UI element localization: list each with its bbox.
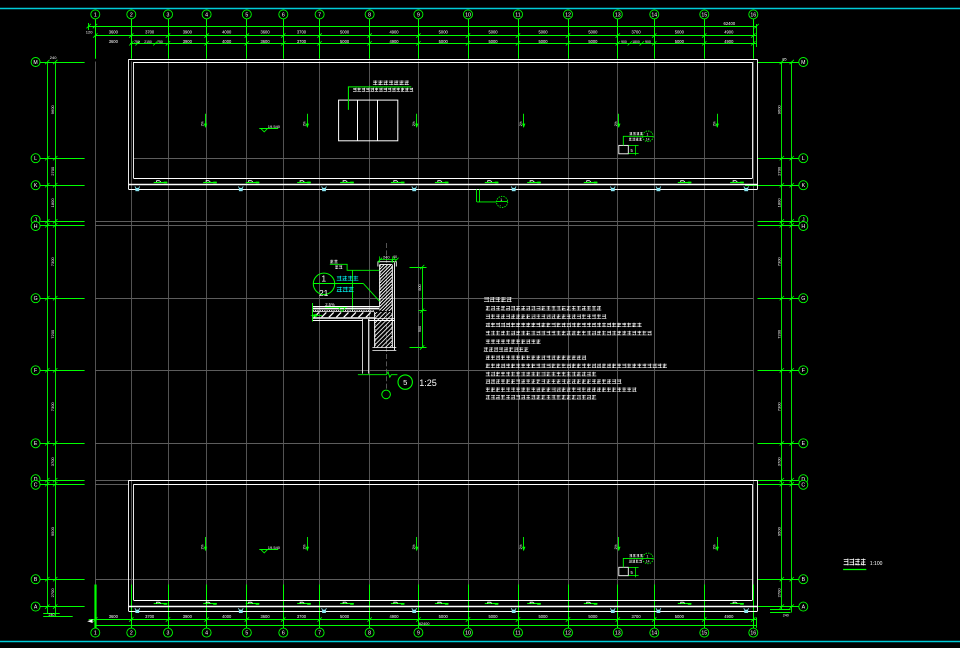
svg-text:8: 8 xyxy=(368,631,371,637)
svg-text:1: 1 xyxy=(321,274,326,284)
svg-text:E: E xyxy=(34,441,38,447)
svg-text:240: 240 xyxy=(50,55,57,60)
svg-text:1:100: 1:100 xyxy=(870,561,883,567)
svg-text:3600: 3600 xyxy=(109,39,119,44)
svg-text:K: K xyxy=(34,183,38,189)
svg-text:900: 900 xyxy=(621,40,627,44)
svg-text:10: 10 xyxy=(465,12,471,18)
svg-text:4900: 4900 xyxy=(389,614,399,619)
svg-text:11: 11 xyxy=(515,12,520,18)
svg-text:3: 3 xyxy=(167,631,170,637)
svg-text:2%: 2% xyxy=(412,544,416,549)
svg-text:14: 14 xyxy=(646,138,650,142)
svg-text:F: F xyxy=(802,368,805,374)
svg-text:1: 1 xyxy=(647,133,649,137)
svg-text:2%: 2% xyxy=(712,544,716,549)
svg-text:5: 5 xyxy=(403,378,407,387)
svg-text:9600: 9600 xyxy=(777,105,782,115)
svg-text:21: 21 xyxy=(319,288,329,298)
svg-text:9: 9 xyxy=(417,631,420,637)
svg-text:E: E xyxy=(802,441,806,447)
svg-text:2%: 2% xyxy=(201,121,205,126)
svg-text:5000: 5000 xyxy=(340,614,350,619)
svg-text:1800: 1800 xyxy=(50,198,55,208)
svg-text:1: 1 xyxy=(647,555,649,559)
svg-text:7: 7 xyxy=(318,12,321,18)
svg-text:7300: 7300 xyxy=(50,257,55,267)
svg-text:62400: 62400 xyxy=(419,622,430,626)
svg-text:2.5%: 2.5% xyxy=(325,302,335,307)
svg-text:11: 11 xyxy=(515,631,520,637)
svg-text:3700: 3700 xyxy=(297,39,307,44)
svg-text:2%: 2% xyxy=(519,121,523,126)
svg-text:A: A xyxy=(34,605,38,611)
svg-text:7: 7 xyxy=(318,631,321,637)
svg-text:7300: 7300 xyxy=(777,257,782,267)
svg-text:3600: 3600 xyxy=(260,614,270,619)
svg-text:5000: 5000 xyxy=(675,30,685,35)
svg-text:1: 1 xyxy=(500,198,502,202)
svg-text:3900: 3900 xyxy=(183,30,193,35)
svg-text:5000: 5000 xyxy=(488,39,498,44)
svg-text:K: K xyxy=(802,183,806,189)
svg-text:600: 600 xyxy=(418,284,422,290)
svg-text:2%: 2% xyxy=(412,121,416,126)
svg-text:7300: 7300 xyxy=(50,402,55,412)
svg-text:900: 900 xyxy=(645,40,651,44)
svg-text:5000: 5000 xyxy=(588,30,598,35)
svg-text:85: 85 xyxy=(782,57,787,62)
svg-text:4900: 4900 xyxy=(724,614,734,619)
svg-text:2%: 2% xyxy=(614,544,618,549)
svg-text:16: 16 xyxy=(750,12,756,18)
svg-text:B: B xyxy=(34,577,38,583)
svg-text:750: 750 xyxy=(134,40,140,44)
svg-text:900: 900 xyxy=(418,326,422,332)
svg-text:3700: 3700 xyxy=(145,30,155,35)
svg-text:H: H xyxy=(801,224,805,230)
svg-text:1800: 1800 xyxy=(632,40,640,44)
svg-text:4900: 4900 xyxy=(724,39,734,44)
svg-text:M: M xyxy=(33,60,37,66)
svg-text:4: 4 xyxy=(205,12,208,18)
svg-text:3600: 3600 xyxy=(260,30,270,35)
svg-text:14: 14 xyxy=(651,12,657,18)
svg-text:3600: 3600 xyxy=(109,614,119,619)
svg-text:1: 1 xyxy=(94,631,97,637)
svg-text:C: C xyxy=(34,483,38,489)
svg-text:C: C xyxy=(801,483,805,489)
svg-text:12: 12 xyxy=(565,631,571,637)
svg-text:1: 1 xyxy=(94,12,97,18)
svg-text:L: L xyxy=(802,156,805,162)
svg-text:4900: 4900 xyxy=(389,39,399,44)
svg-text:16: 16 xyxy=(750,631,756,637)
svg-text:5000: 5000 xyxy=(340,39,350,44)
svg-text:1800: 1800 xyxy=(777,198,782,208)
svg-text:5000: 5000 xyxy=(588,39,598,44)
svg-text:5000: 5000 xyxy=(439,614,449,619)
svg-text:3900: 3900 xyxy=(183,614,193,619)
svg-text:62400: 62400 xyxy=(724,21,736,26)
svg-text:19.540: 19.540 xyxy=(268,545,281,550)
svg-text:2%: 2% xyxy=(712,121,716,126)
svg-text:13: 13 xyxy=(615,12,621,18)
svg-text:2%: 2% xyxy=(201,544,205,549)
svg-text:19.540: 19.540 xyxy=(268,124,281,129)
svg-text:10: 10 xyxy=(465,631,471,637)
svg-text:5000: 5000 xyxy=(439,30,449,35)
svg-text:2%: 2% xyxy=(303,544,307,549)
svg-text:H: H xyxy=(34,224,38,230)
svg-text:2150: 2150 xyxy=(144,40,152,44)
svg-text:5000: 5000 xyxy=(538,614,548,619)
svg-text:2700: 2700 xyxy=(50,588,55,598)
svg-text:7300: 7300 xyxy=(777,402,782,412)
svg-text:9600: 9600 xyxy=(50,105,55,115)
svg-text:4000: 4000 xyxy=(222,614,232,619)
svg-text:3700: 3700 xyxy=(297,614,307,619)
svg-text:5000: 5000 xyxy=(675,39,685,44)
svg-text:5000: 5000 xyxy=(488,614,498,619)
svg-text:M: M xyxy=(801,60,805,66)
svg-text:5000: 5000 xyxy=(675,614,685,619)
svg-text:5000: 5000 xyxy=(538,39,548,44)
svg-text:3700: 3700 xyxy=(145,614,155,619)
svg-text:2%: 2% xyxy=(614,121,618,126)
svg-text:2%: 2% xyxy=(303,121,307,126)
svg-text:3700: 3700 xyxy=(50,457,55,467)
svg-text:5: 5 xyxy=(245,631,248,637)
svg-text:4: 4 xyxy=(205,631,208,637)
svg-text:240: 240 xyxy=(383,254,390,259)
svg-text:15: 15 xyxy=(701,12,707,18)
svg-text:B: B xyxy=(802,577,806,583)
svg-text:G: G xyxy=(801,296,805,302)
svg-text:3700: 3700 xyxy=(777,457,782,467)
svg-text:3900: 3900 xyxy=(183,39,193,44)
svg-text:1:25: 1:25 xyxy=(419,378,437,388)
svg-text:9500: 9500 xyxy=(50,526,55,536)
svg-text:14: 14 xyxy=(651,631,657,637)
svg-text:240: 240 xyxy=(49,613,55,617)
svg-text:F: F xyxy=(34,368,37,374)
svg-text:14: 14 xyxy=(646,560,650,564)
svg-text:5000: 5000 xyxy=(488,30,498,35)
svg-text:3700: 3700 xyxy=(631,614,641,619)
svg-text:4900: 4900 xyxy=(724,30,734,35)
svg-text:5: 5 xyxy=(245,12,248,18)
svg-text:4000: 4000 xyxy=(222,39,232,44)
svg-text:4900: 4900 xyxy=(389,30,399,35)
svg-text:2%: 2% xyxy=(519,544,523,549)
svg-text:9: 9 xyxy=(417,12,420,18)
svg-text:240: 240 xyxy=(783,613,789,617)
svg-text:7200: 7200 xyxy=(50,329,55,339)
svg-text:5000: 5000 xyxy=(439,39,449,44)
svg-text:3600: 3600 xyxy=(260,39,270,44)
svg-text:60: 60 xyxy=(393,255,397,259)
svg-text:7200: 7200 xyxy=(777,329,782,339)
svg-text:6: 6 xyxy=(282,631,285,637)
svg-text:2: 2 xyxy=(130,631,133,637)
svg-text:5000: 5000 xyxy=(340,30,350,35)
svg-text:9500: 9500 xyxy=(777,526,782,536)
svg-text:15: 15 xyxy=(701,631,707,637)
svg-text:120: 120 xyxy=(86,30,93,35)
svg-text:5000: 5000 xyxy=(538,30,548,35)
svg-text:4000: 4000 xyxy=(222,30,232,35)
svg-text:5000: 5000 xyxy=(588,614,598,619)
svg-text:2700: 2700 xyxy=(777,588,782,598)
svg-text:6: 6 xyxy=(282,12,285,18)
svg-text:G: G xyxy=(34,296,38,302)
svg-text:L: L xyxy=(34,156,37,162)
svg-text:3: 3 xyxy=(167,12,170,18)
svg-text:2700: 2700 xyxy=(777,166,782,176)
svg-text:3700: 3700 xyxy=(297,30,307,35)
svg-text:2: 2 xyxy=(130,12,133,18)
svg-text:13: 13 xyxy=(615,631,621,637)
svg-text:8: 8 xyxy=(368,12,371,18)
svg-text:750: 750 xyxy=(157,40,163,44)
svg-text:3600: 3600 xyxy=(109,30,119,35)
svg-text:3700: 3700 xyxy=(631,30,641,35)
svg-text:12: 12 xyxy=(565,12,571,18)
svg-text:2700: 2700 xyxy=(50,166,55,176)
svg-text:A: A xyxy=(802,605,806,611)
